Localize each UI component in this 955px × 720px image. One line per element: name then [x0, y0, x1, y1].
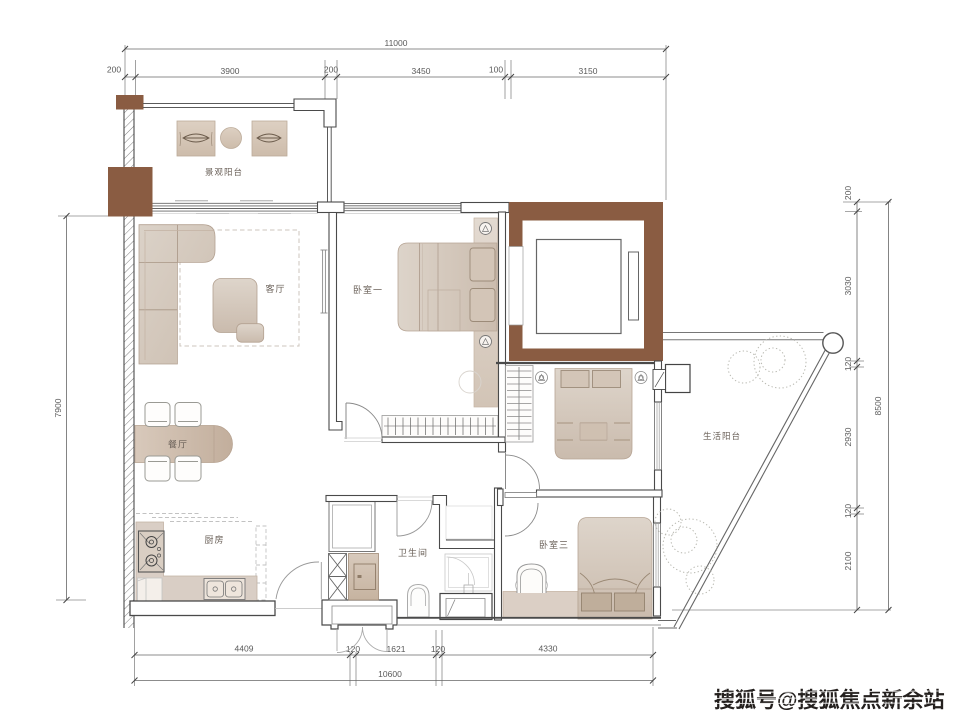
svg-text:3900: 3900 — [221, 66, 240, 76]
svg-text:200: 200 — [843, 186, 853, 200]
svg-text:3150: 3150 — [579, 66, 598, 76]
svg-text:客厅: 客厅 — [265, 283, 285, 294]
svg-text:餐厅: 餐厅 — [168, 439, 188, 450]
svg-text:3030: 3030 — [843, 276, 853, 295]
svg-text:200: 200 — [324, 65, 338, 75]
svg-text:120: 120 — [346, 644, 360, 654]
svg-text:200: 200 — [107, 65, 121, 75]
svg-text:2930: 2930 — [843, 427, 853, 446]
svg-text:卧室一: 卧室一 — [353, 284, 383, 295]
svg-text:景观阳台: 景观阳台 — [205, 167, 243, 177]
svg-text:2100: 2100 — [843, 551, 853, 570]
svg-text:7900: 7900 — [53, 398, 63, 417]
svg-text:3450: 3450 — [412, 66, 431, 76]
svg-text:120: 120 — [843, 357, 853, 371]
svg-text:120: 120 — [843, 504, 853, 518]
svg-text:4409: 4409 — [235, 644, 254, 654]
svg-text:厨房: 厨房 — [204, 534, 224, 545]
svg-text:1621: 1621 — [387, 644, 406, 654]
svg-text:生活阳台: 生活阳台 — [703, 431, 741, 441]
svg-text:4330: 4330 — [539, 644, 558, 654]
svg-text:10600: 10600 — [378, 669, 402, 679]
svg-text:卧室三: 卧室三 — [539, 539, 569, 550]
svg-text:120: 120 — [431, 644, 445, 654]
svg-text:11000: 11000 — [384, 38, 407, 48]
svg-text:100: 100 — [489, 65, 503, 75]
svg-text:8500: 8500 — [873, 396, 883, 415]
svg-text:卫生间: 卫生间 — [398, 547, 428, 558]
